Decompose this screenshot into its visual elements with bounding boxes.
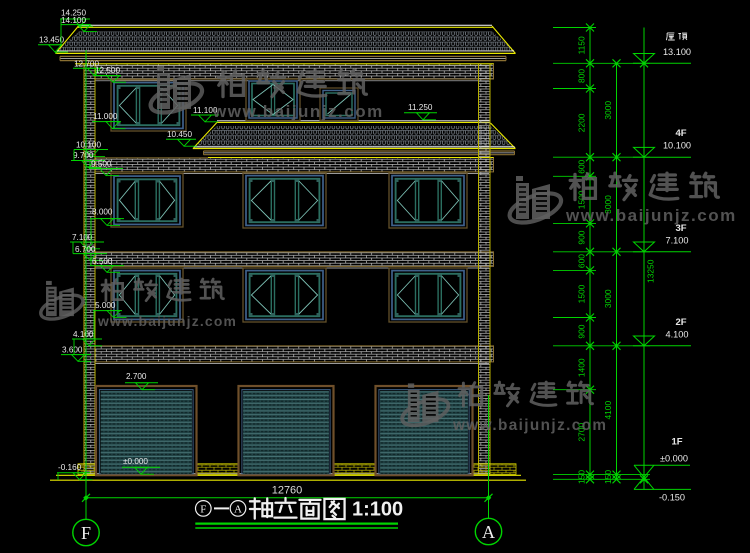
svg-text:14.100: 14.100	[61, 16, 86, 25]
svg-text:-0.160: -0.160	[58, 463, 82, 472]
svg-text:12.500: 12.500	[95, 66, 120, 75]
svg-text:13.100: 13.100	[663, 47, 691, 57]
svg-text:11.250: 11.250	[408, 103, 433, 112]
svg-text:1500: 1500	[577, 284, 587, 303]
svg-text:900: 900	[577, 324, 587, 338]
svg-text:4.100: 4.100	[73, 330, 94, 339]
svg-text:±0.000: ±0.000	[660, 454, 688, 464]
svg-text:F: F	[81, 523, 91, 543]
svg-text:1F: 1F	[671, 437, 682, 448]
svg-text:7.100: 7.100	[72, 233, 93, 242]
svg-text:600: 600	[577, 159, 587, 173]
svg-text:10.450: 10.450	[167, 130, 192, 139]
svg-text:-0.150: -0.150	[659, 493, 685, 503]
svg-text:3000: 3000	[603, 101, 613, 120]
svg-text:7.100: 7.100	[666, 235, 689, 245]
svg-text:600: 600	[577, 254, 587, 268]
svg-text:150: 150	[603, 470, 613, 484]
svg-text:www.baijunjz.com: www.baijunjz.com	[565, 206, 737, 225]
svg-text:9.500: 9.500	[91, 160, 112, 169]
svg-text:6.500: 6.500	[92, 257, 113, 266]
svg-text:www.baijunjz.com: www.baijunjz.com	[452, 417, 607, 434]
svg-text:4F: 4F	[675, 128, 686, 139]
svg-text:www.baijunjz.com: www.baijunjz.com	[212, 102, 384, 121]
svg-text:F: F	[200, 504, 206, 516]
svg-text:2F: 2F	[675, 317, 686, 328]
svg-text:1:100: 1:100	[352, 499, 403, 521]
svg-text:2.700: 2.700	[126, 372, 147, 381]
svg-text:900: 900	[577, 230, 587, 244]
svg-text:13250: 13250	[646, 259, 656, 283]
svg-text:±0.000: ±0.000	[123, 457, 148, 466]
svg-text:10.100: 10.100	[663, 141, 691, 151]
svg-text:12760: 12760	[272, 485, 303, 497]
svg-text:8.000: 8.000	[92, 208, 113, 217]
svg-text:150: 150	[577, 470, 587, 484]
svg-text:www.baijunjz.com: www.baijunjz.com	[97, 313, 237, 329]
svg-text:11.000: 11.000	[93, 112, 118, 121]
svg-text:10.100: 10.100	[76, 141, 101, 150]
svg-text:3000: 3000	[603, 289, 613, 308]
svg-text:800: 800	[577, 69, 587, 83]
svg-text:A: A	[482, 522, 495, 542]
svg-text:5.000: 5.000	[95, 301, 116, 310]
svg-text:1150: 1150	[577, 36, 587, 54]
svg-text:2200: 2200	[577, 113, 587, 132]
svg-text:3.600: 3.600	[62, 346, 83, 355]
svg-text:1400: 1400	[577, 358, 587, 377]
svg-text:A: A	[234, 504, 242, 516]
svg-text:6.700: 6.700	[75, 245, 96, 254]
svg-text:4.100: 4.100	[666, 329, 689, 339]
